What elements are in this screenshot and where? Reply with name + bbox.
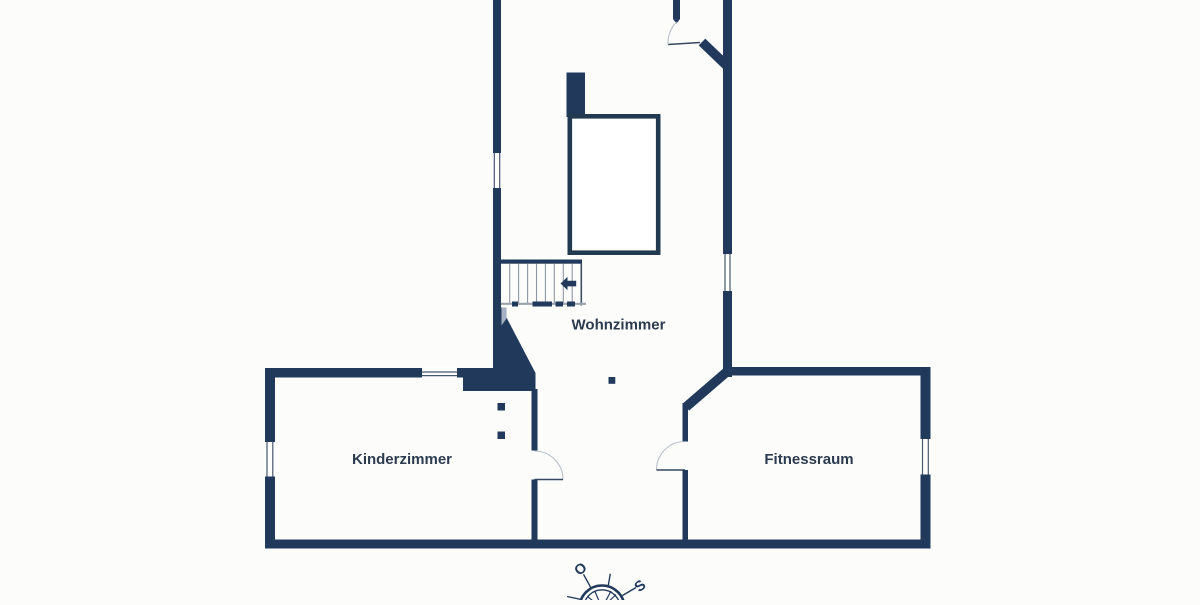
- svg-text:Wohnzimmer: Wohnzimmer: [572, 317, 666, 334]
- svg-text:Fitnessraum: Fitnessraum: [764, 451, 853, 468]
- svg-text:Kinderzimmer: Kinderzimmer: [352, 451, 452, 468]
